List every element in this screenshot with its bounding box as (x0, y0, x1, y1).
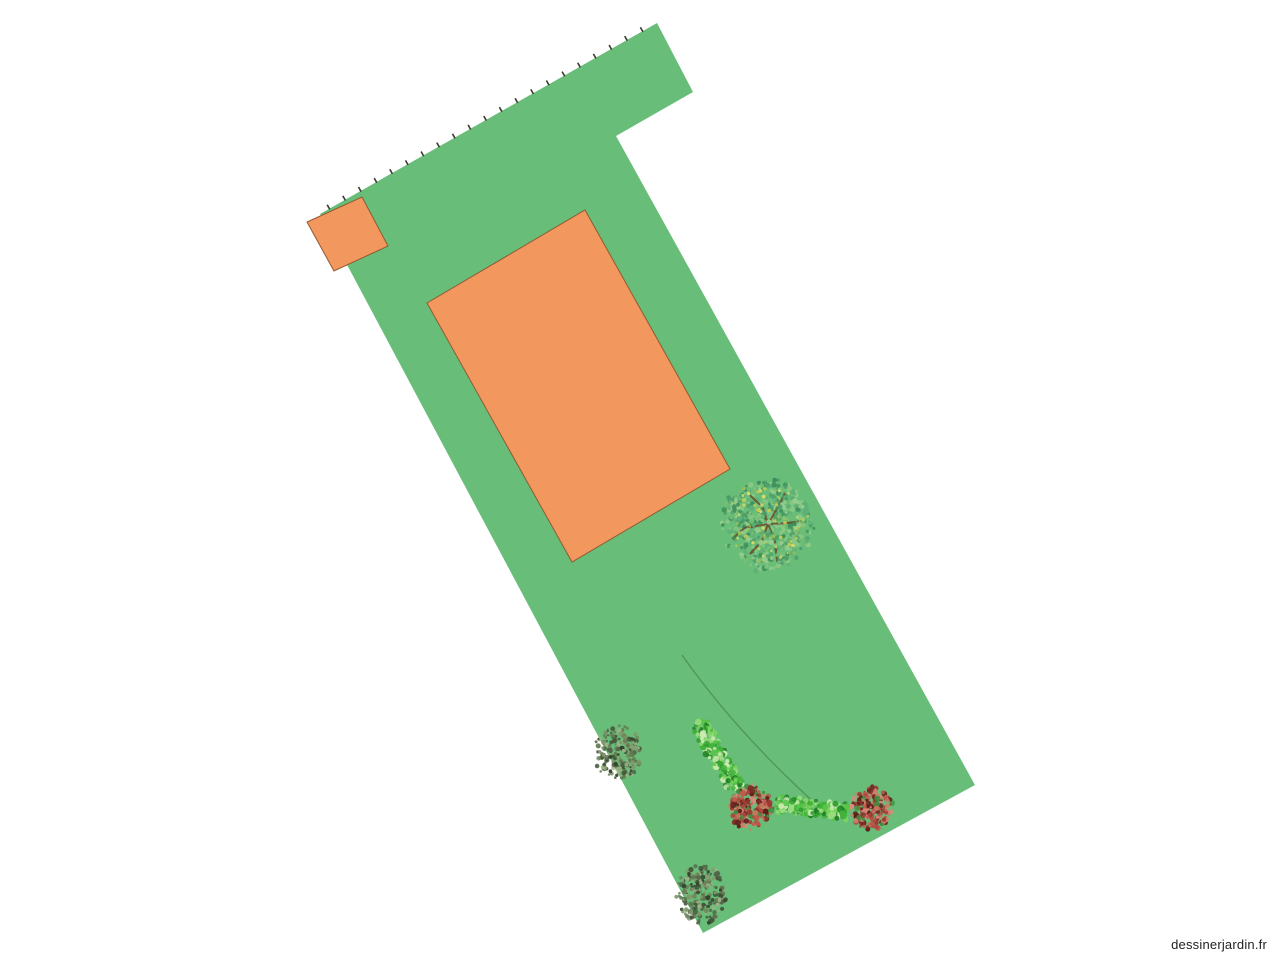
garden-plan-drawing (0, 0, 1280, 960)
watermark: dessinerjardin.fr (1171, 937, 1267, 952)
garden-plan-canvas: dessinerjardin.fr (0, 0, 1280, 960)
